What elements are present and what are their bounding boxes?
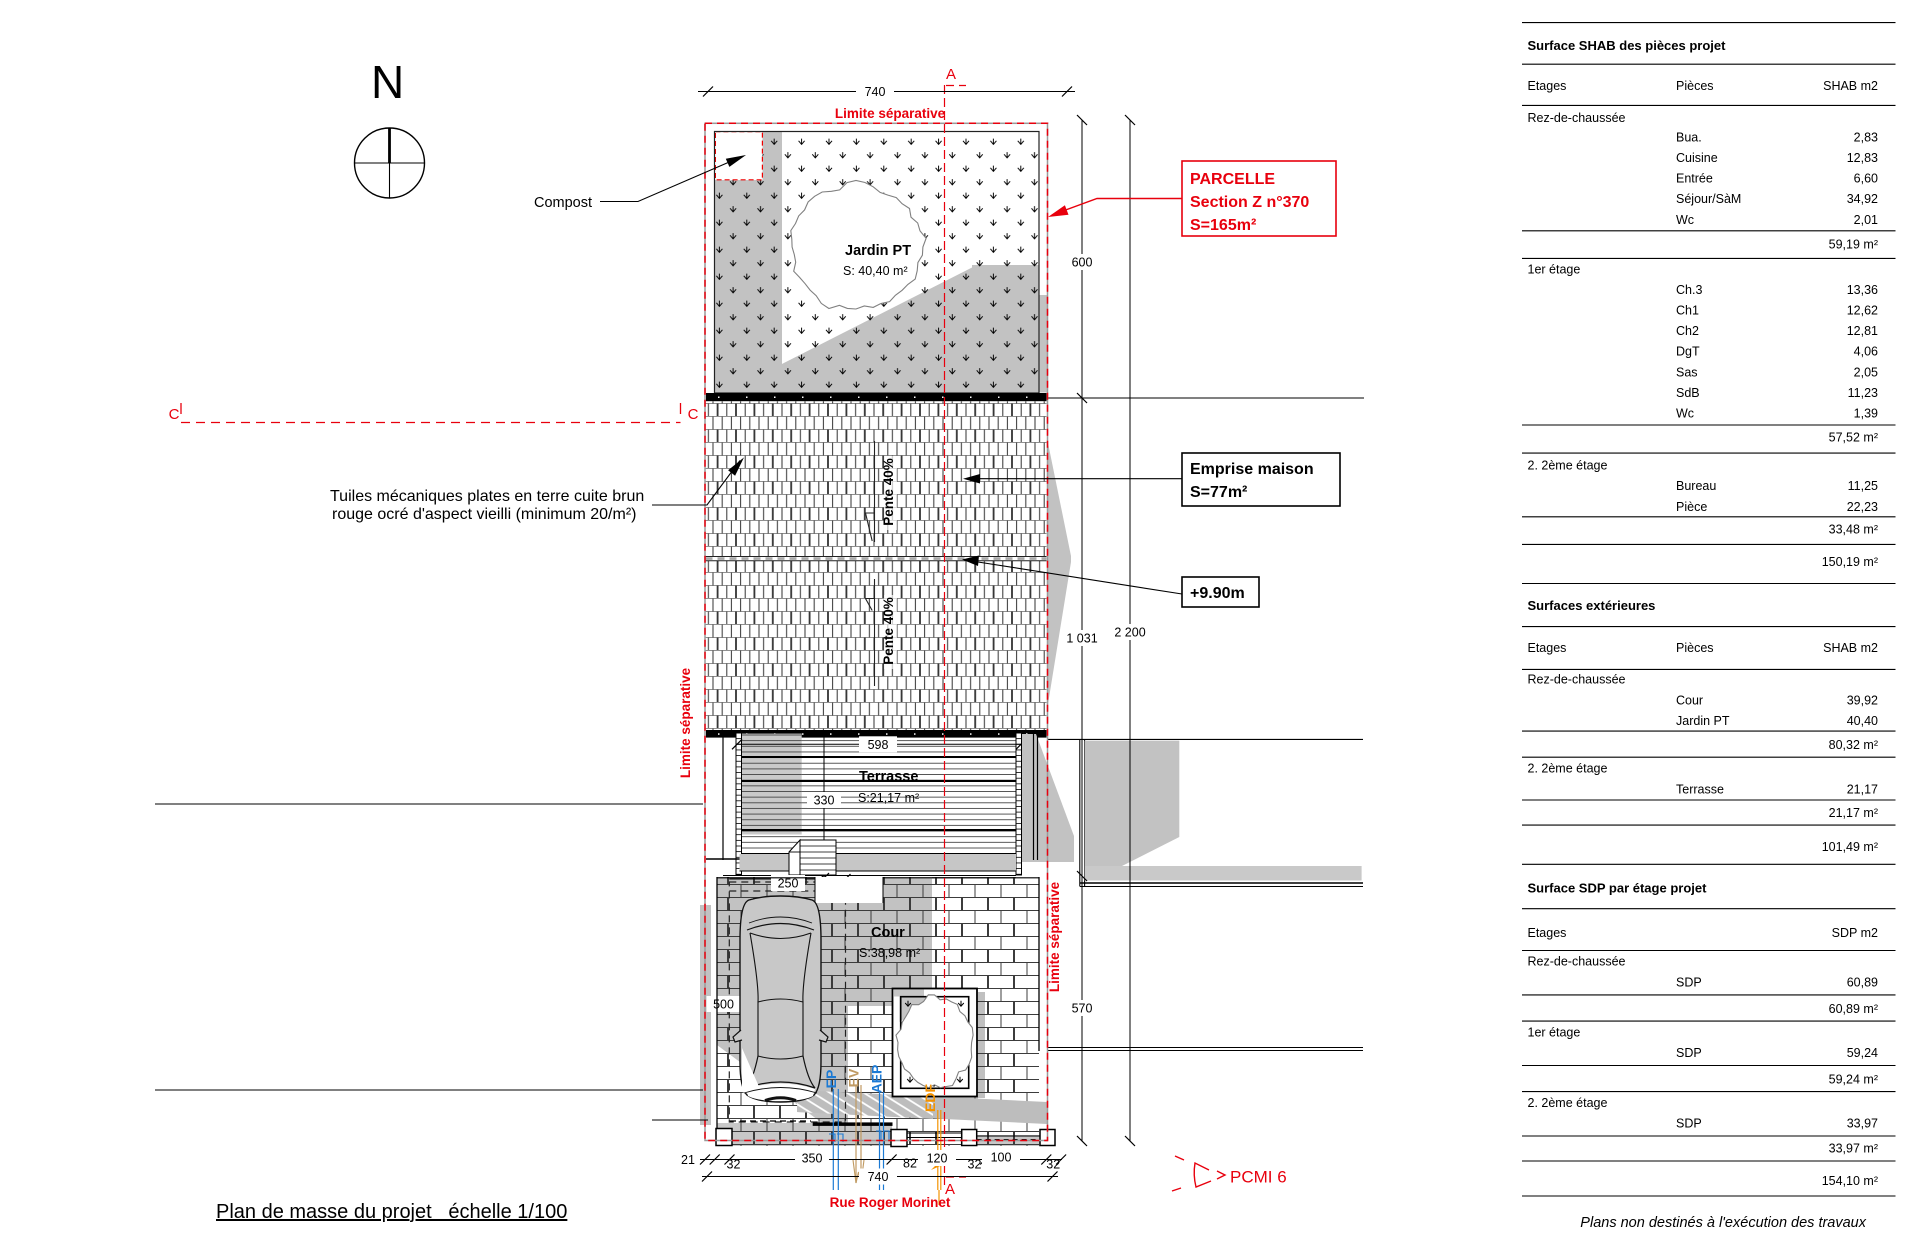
svg-text:Jardin PT: Jardin PT [845, 243, 911, 259]
svg-text:Plans non destinés à l'exécuti: Plans non destinés à l'exécution des tra… [1580, 1215, 1866, 1231]
svg-text:rouge ocré d'aspect vieilli (m: rouge ocré d'aspect vieilli (minimum 20/… [332, 506, 636, 523]
svg-text:57,52 m²: 57,52 m² [1829, 431, 1878, 445]
svg-text:4,06: 4,06 [1854, 345, 1878, 359]
svg-text:Wc: Wc [1676, 406, 1694, 420]
svg-text:Séjour/SàM: Séjour/SàM [1676, 192, 1741, 206]
svg-text:59,24 m²: 59,24 m² [1829, 1072, 1878, 1086]
svg-text:80,32 m²: 80,32 m² [1829, 738, 1878, 752]
svg-text:EV: EV [846, 1068, 862, 1087]
svg-text:82: 82 [903, 1157, 917, 1171]
svg-text:33,97 m²: 33,97 m² [1829, 1142, 1878, 1156]
svg-text:AEP: AEP [869, 1065, 885, 1094]
svg-text:100: 100 [991, 1151, 1012, 1165]
svg-text:120: 120 [927, 1152, 948, 1166]
svg-text:Rez-de-chaussée: Rez-de-chaussée [1528, 111, 1626, 125]
svg-text:Limite séparative: Limite séparative [1047, 881, 1062, 992]
svg-text:1er étage: 1er étage [1528, 1025, 1581, 1039]
svg-text:32: 32 [1046, 1158, 1060, 1172]
svg-text:Surface SHAB des pièces projet: Surface SHAB des pièces projet [1528, 38, 1727, 53]
svg-text:32: 32 [968, 1158, 982, 1172]
svg-text:2. 2ème étage: 2. 2ème étage [1528, 459, 1608, 473]
svg-text:Cour: Cour [871, 925, 905, 941]
svg-text:2,83: 2,83 [1854, 131, 1878, 145]
svg-text:39,92: 39,92 [1847, 694, 1878, 708]
svg-text:SDP: SDP [1676, 976, 1702, 990]
svg-text:Surface SDP par étage projet: Surface SDP par étage projet [1528, 881, 1708, 896]
svg-text:Etages: Etages [1528, 926, 1567, 940]
svg-text:11,23: 11,23 [1848, 386, 1878, 400]
svg-text:1,39: 1,39 [1854, 406, 1878, 420]
svg-text:34,92: 34,92 [1847, 192, 1878, 206]
svg-text:Limite séparative: Limite séparative [835, 106, 946, 121]
svg-text:SDP: SDP [1676, 1117, 1702, 1131]
svg-text:32: 32 [727, 1158, 741, 1172]
svg-text:Limite séparative: Limite séparative [678, 667, 693, 778]
svg-text:570: 570 [1072, 1002, 1093, 1016]
svg-text:Sas: Sas [1676, 365, 1698, 379]
svg-text:33,48 m²: 33,48 m² [1829, 522, 1878, 536]
svg-text:2,01: 2,01 [1854, 213, 1878, 227]
svg-text:350: 350 [802, 1152, 823, 1166]
svg-text:PARCELLE: PARCELLE [1190, 171, 1275, 188]
svg-text:Section Z n°370: Section Z n°370 [1190, 194, 1309, 211]
svg-text:12,83: 12,83 [1847, 151, 1878, 165]
svg-text:250: 250 [778, 877, 799, 891]
svg-text:S:38,98 m²: S:38,98 m² [859, 946, 920, 960]
svg-text:1er étage: 1er étage [1528, 263, 1581, 277]
svg-text:154,10 m²: 154,10 m² [1822, 1174, 1878, 1188]
svg-text:PCMI 6: PCMI 6 [1230, 1168, 1287, 1187]
svg-text:Wc: Wc [1676, 213, 1694, 227]
svg-text:SDP m2: SDP m2 [1832, 926, 1878, 940]
svg-text:C: C [688, 406, 699, 423]
svg-text:Terrasse: Terrasse [859, 769, 918, 785]
svg-text:Compost: Compost [534, 195, 592, 211]
svg-text:Pente 40%: Pente 40% [881, 458, 896, 526]
svg-text:21,17 m²: 21,17 m² [1829, 806, 1878, 820]
svg-text:22,23: 22,23 [1847, 500, 1878, 514]
svg-text:6,60: 6,60 [1854, 172, 1878, 186]
svg-text:N: N [371, 56, 404, 108]
svg-text:Cuisine: Cuisine [1676, 151, 1718, 165]
svg-text:12,81: 12,81 [1847, 324, 1878, 338]
svg-text:Etages: Etages [1528, 79, 1567, 93]
svg-text:+9.90m: +9.90m [1190, 585, 1245, 602]
svg-text:150,19 m²: 150,19 m² [1822, 555, 1878, 569]
svg-text:Rez-de-chaussée: Rez-de-chaussée [1528, 955, 1626, 969]
svg-text:Bureau: Bureau [1676, 479, 1716, 493]
svg-text:59,19 m²: 59,19 m² [1829, 238, 1878, 252]
svg-text:Pièce: Pièce [1676, 500, 1707, 514]
svg-text:2. 2ème étage: 2. 2ème étage [1528, 761, 1608, 775]
svg-text:Entrée: Entrée [1676, 172, 1713, 186]
svg-text:S:21,17 m²: S:21,17 m² [858, 791, 919, 805]
svg-text:Ch2: Ch2 [1676, 324, 1699, 338]
svg-text:59,24: 59,24 [1847, 1046, 1878, 1060]
svg-text:Terrasse: Terrasse [1676, 782, 1724, 796]
svg-text:Emprise maison: Emprise maison [1190, 461, 1314, 478]
svg-text:Surfaces extérieures: Surfaces extérieures [1528, 598, 1656, 613]
svg-text:740: 740 [865, 85, 886, 99]
svg-text:Pente 40%: Pente 40% [881, 597, 896, 665]
svg-text:Cour: Cour [1676, 694, 1703, 708]
svg-text:500: 500 [713, 998, 734, 1012]
svg-text:13,36: 13,36 [1847, 283, 1878, 297]
svg-text:33,97: 33,97 [1847, 1117, 1878, 1131]
svg-text:2. 2ème étage: 2. 2ème étage [1528, 1096, 1608, 1110]
svg-text:S=165m²: S=165m² [1190, 217, 1256, 234]
svg-text:600: 600 [1072, 256, 1093, 270]
svg-text:1 031: 1 031 [1066, 632, 1097, 646]
svg-text:Jardin PT: Jardin PT [1676, 714, 1730, 728]
svg-text:21,17: 21,17 [1847, 782, 1878, 796]
svg-text:Rez-de-chaussée: Rez-de-chaussée [1528, 673, 1626, 687]
svg-text:Pièces: Pièces [1676, 641, 1714, 655]
svg-text:Plan de masse du projet éche: Plan de masse du projet échelle 1/100 [216, 1201, 567, 1223]
svg-text:SHAB m2: SHAB m2 [1823, 641, 1878, 655]
svg-text:598: 598 [868, 738, 889, 752]
svg-text:DgT: DgT [1676, 345, 1700, 359]
svg-text:101,49 m²: 101,49 m² [1822, 840, 1878, 854]
svg-text:Bua.: Bua. [1676, 131, 1702, 145]
svg-text:S: 40,40 m²: S: 40,40 m² [843, 264, 908, 278]
svg-text:SHAB m2: SHAB m2 [1823, 79, 1878, 93]
svg-text:12,62: 12,62 [1847, 304, 1878, 318]
svg-text:Etages: Etages [1528, 641, 1567, 655]
svg-text:Pièces: Pièces [1676, 79, 1714, 93]
svg-text:40,40: 40,40 [1847, 714, 1878, 728]
svg-text:Rue Roger Morinet: Rue Roger Morinet [830, 1195, 951, 1210]
svg-text:Tuiles mécaniques plates en te: Tuiles mécaniques plates en terre cuite … [330, 488, 644, 505]
svg-text:SDP: SDP [1676, 1046, 1702, 1060]
svg-text:EP: EP [823, 1070, 839, 1089]
svg-text:330: 330 [814, 794, 835, 808]
svg-text:740: 740 [868, 1170, 889, 1184]
svg-text:21: 21 [681, 1153, 695, 1167]
svg-text:60,89: 60,89 [1847, 976, 1878, 990]
svg-text:2,05: 2,05 [1854, 365, 1878, 379]
svg-text:Ch.3: Ch.3 [1676, 283, 1702, 297]
svg-text:EDF: EDF [922, 1084, 938, 1112]
svg-text:S=77m²: S=77m² [1190, 484, 1247, 501]
svg-text:60,89 m²: 60,89 m² [1829, 1002, 1878, 1016]
svg-text:C: C [169, 406, 180, 423]
svg-text:11,25: 11,25 [1848, 479, 1878, 493]
svg-text:2 200: 2 200 [1114, 626, 1145, 640]
svg-text:Ch1: Ch1 [1676, 304, 1699, 318]
svg-text:A: A [946, 66, 956, 83]
svg-text:SdB: SdB [1676, 386, 1700, 400]
